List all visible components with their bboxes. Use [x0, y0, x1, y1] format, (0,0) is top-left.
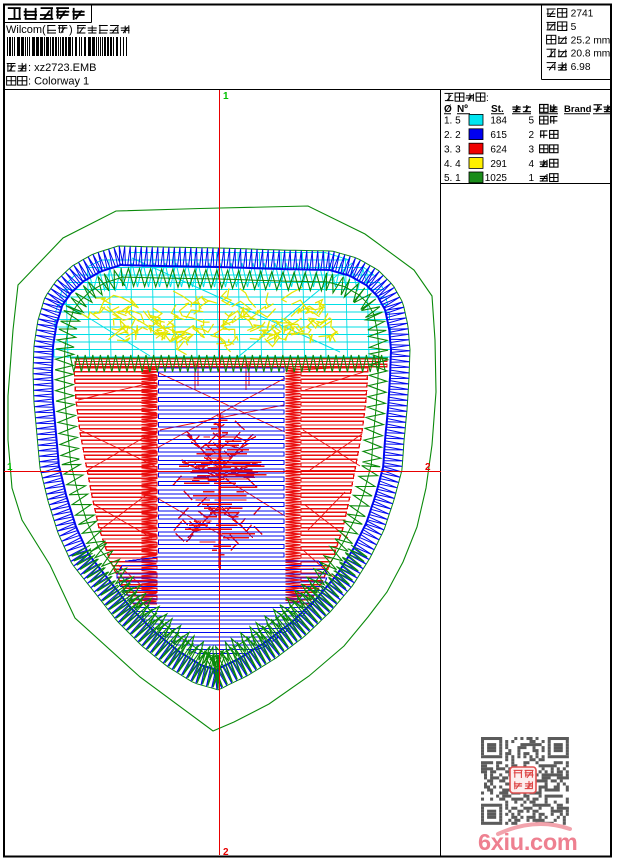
- svg-text:4. 4: 4. 4: [444, 159, 461, 170]
- svg-text:5. 1: 5. 1: [444, 173, 461, 184]
- svg-text:2: 2: [223, 847, 229, 858]
- svg-text:: 6.98: : 6.98: [565, 62, 591, 73]
- svg-text:6xiu.com: 6xiu.com: [478, 829, 577, 855]
- svg-text:: Colorway 1: : Colorway 1: [28, 76, 89, 88]
- svg-text:: 5: : 5: [565, 22, 577, 33]
- svg-text:1: 1: [223, 91, 229, 102]
- svg-text:2: 2: [528, 130, 534, 141]
- svg-text:624: 624: [490, 144, 507, 155]
- svg-text:3. 3: 3. 3: [444, 144, 461, 155]
- svg-text:: 20.8 mm: : 20.8 mm: [565, 49, 610, 60]
- svg-text:2: 2: [425, 462, 431, 473]
- svg-text:: xz2723.EMB: : xz2723.EMB: [28, 62, 96, 74]
- svg-text:5: 5: [528, 116, 534, 127]
- svg-text:184: 184: [490, 116, 507, 127]
- svg-text:4: 4: [528, 159, 534, 170]
- svg-text::: :: [486, 93, 489, 104]
- svg-text:1025: 1025: [485, 173, 508, 184]
- svg-text:615: 615: [490, 130, 507, 141]
- svg-text:291: 291: [490, 159, 507, 170]
- svg-text:Wilcom(: Wilcom(: [6, 24, 46, 36]
- svg-text:1: 1: [7, 462, 13, 473]
- svg-text:): ): [69, 24, 73, 36]
- svg-text:2. 2: 2. 2: [444, 130, 461, 141]
- svg-text:: 2741: : 2741: [565, 9, 594, 20]
- svg-text:1: 1: [528, 173, 534, 184]
- svg-text:3: 3: [528, 144, 534, 155]
- svg-text:1. 5: 1. 5: [444, 116, 461, 127]
- svg-text:: 25.2 mm: : 25.2 mm: [565, 35, 610, 46]
